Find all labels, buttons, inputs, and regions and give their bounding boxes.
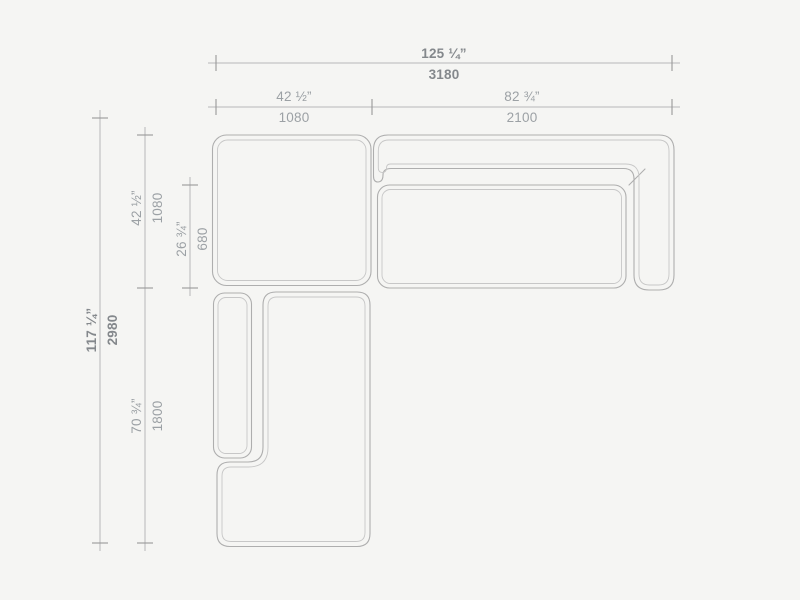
dim-label-right-module-width-inches: 82 ¾” <box>504 89 540 104</box>
dim-label-chaise-length-mm: 1800 <box>150 401 165 432</box>
dim-label-right-module-width-mm: 2100 <box>507 110 538 125</box>
corner-module-outline <box>213 135 372 286</box>
left-armrest-outline <box>214 293 252 458</box>
dim-label-overall-width-mm: 3180 <box>429 67 460 82</box>
dim-label-overall-depth-mm: 2980 <box>105 315 120 346</box>
sofa-dimension-drawing: 125 ¼” 3180 117 ¼” 2980 42 ½” 1080 82 ¾”… <box>0 0 800 600</box>
chaise-module-outline <box>217 292 370 547</box>
dim-label-left-module-width-mm: 1080 <box>279 110 310 125</box>
dim-label-overall-width-inches: 125 ¼” <box>421 46 466 61</box>
chaise-module-inner-outline <box>222 297 365 542</box>
dim-label-chaise-length-inches: 70 ¾” <box>129 398 144 434</box>
right-seat-cushion-inner-outline <box>382 190 622 284</box>
dim-label-overall-depth-inches: 117 ¼” <box>84 308 99 353</box>
dimension-ticks <box>92 55 672 543</box>
corner-module-inner-outline <box>218 140 367 281</box>
sofa-plan <box>213 135 675 547</box>
dim-label-left-module-width-inches: 42 ½” <box>276 89 312 104</box>
dimension-lines <box>100 63 680 551</box>
right-seat-cushion-outline <box>378 185 627 288</box>
dim-label-seat-depth-mm: 680 <box>195 227 210 250</box>
dim-label-top-module-depth-inches: 42 ½” <box>129 190 144 226</box>
sofa-back-arm-inner-outline <box>378 140 669 285</box>
sofa-back-arm-outline <box>374 135 675 290</box>
left-armrest-inner-outline <box>218 298 247 454</box>
drawing-canvas: 125 ¼” 3180 117 ¼” 2980 42 ½” 1080 82 ¾”… <box>0 0 800 600</box>
dim-label-seat-depth-inches: 26 ¾” <box>174 221 189 257</box>
dim-label-top-module-depth-mm: 1080 <box>150 193 165 224</box>
